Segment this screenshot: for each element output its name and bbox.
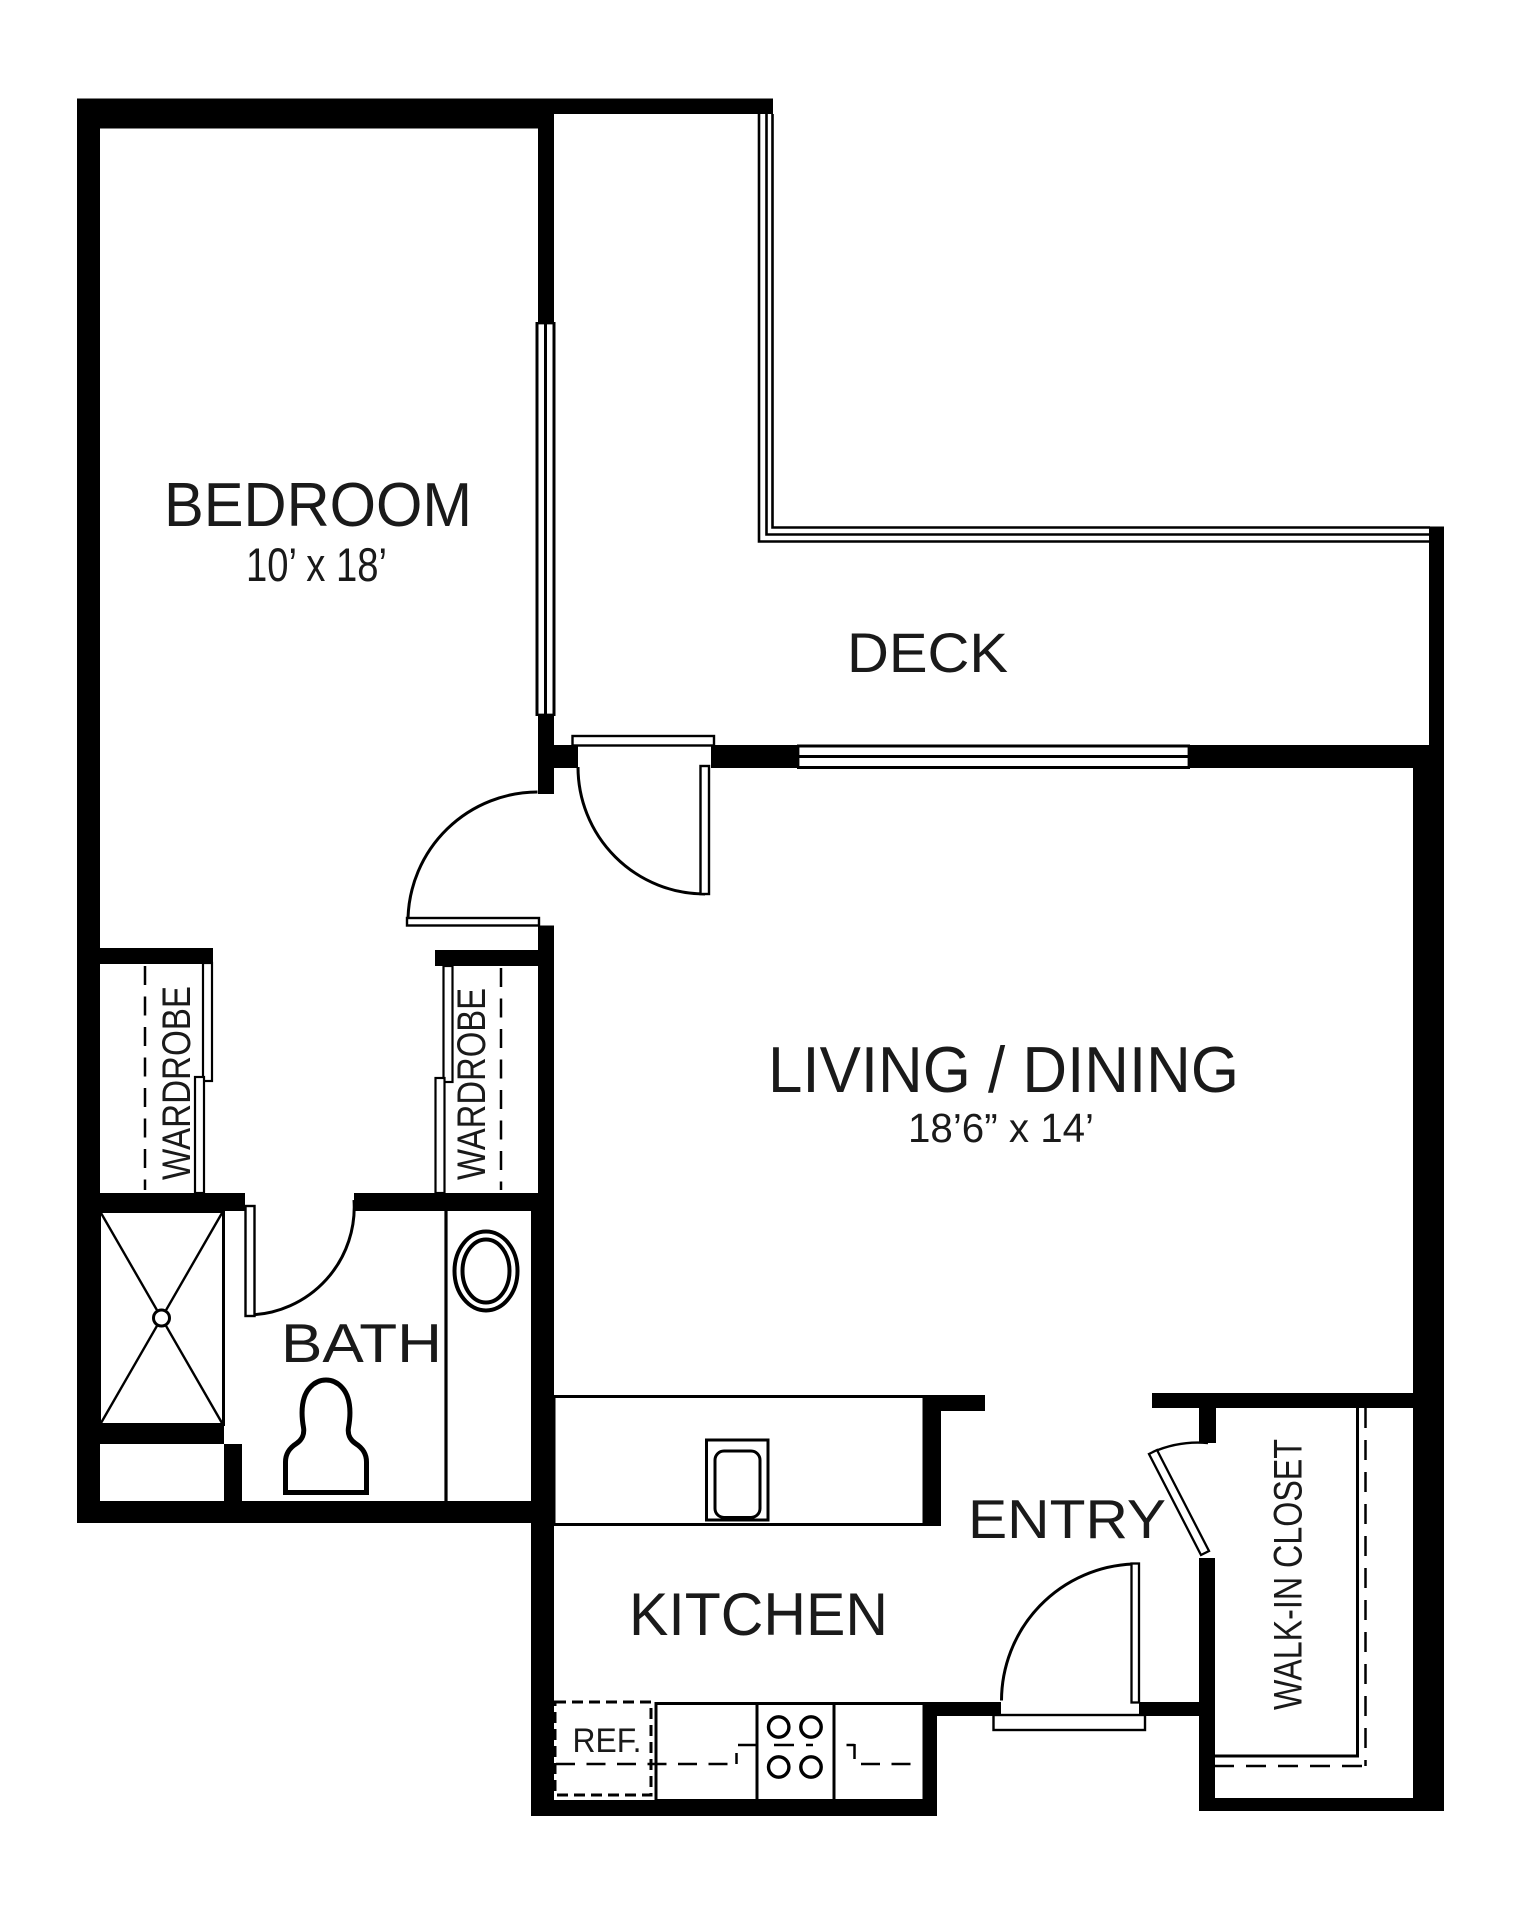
svg-text:18’6” x 14’: 18’6” x 14’ [908,1105,1094,1151]
svg-text:ENTRY: ENTRY [968,1488,1166,1550]
svg-text:WARDROBE: WARDROBE [450,988,494,1180]
svg-text:WALK-IN CLOSET: WALK-IN CLOSET [1267,1439,1311,1710]
svg-text:KITCHEN: KITCHEN [629,1581,888,1648]
svg-text:WARDROBE: WARDROBE [155,986,199,1180]
svg-text:LIVING / DINING: LIVING / DINING [768,1033,1239,1106]
svg-text:BEDROOM: BEDROOM [164,471,472,540]
svg-text:BATH: BATH [281,1312,442,1374]
svg-text:REF.: REF. [573,1722,642,1760]
svg-text:DECK: DECK [847,621,1008,684]
svg-text:10’ x 18’: 10’ x 18’ [246,538,387,591]
